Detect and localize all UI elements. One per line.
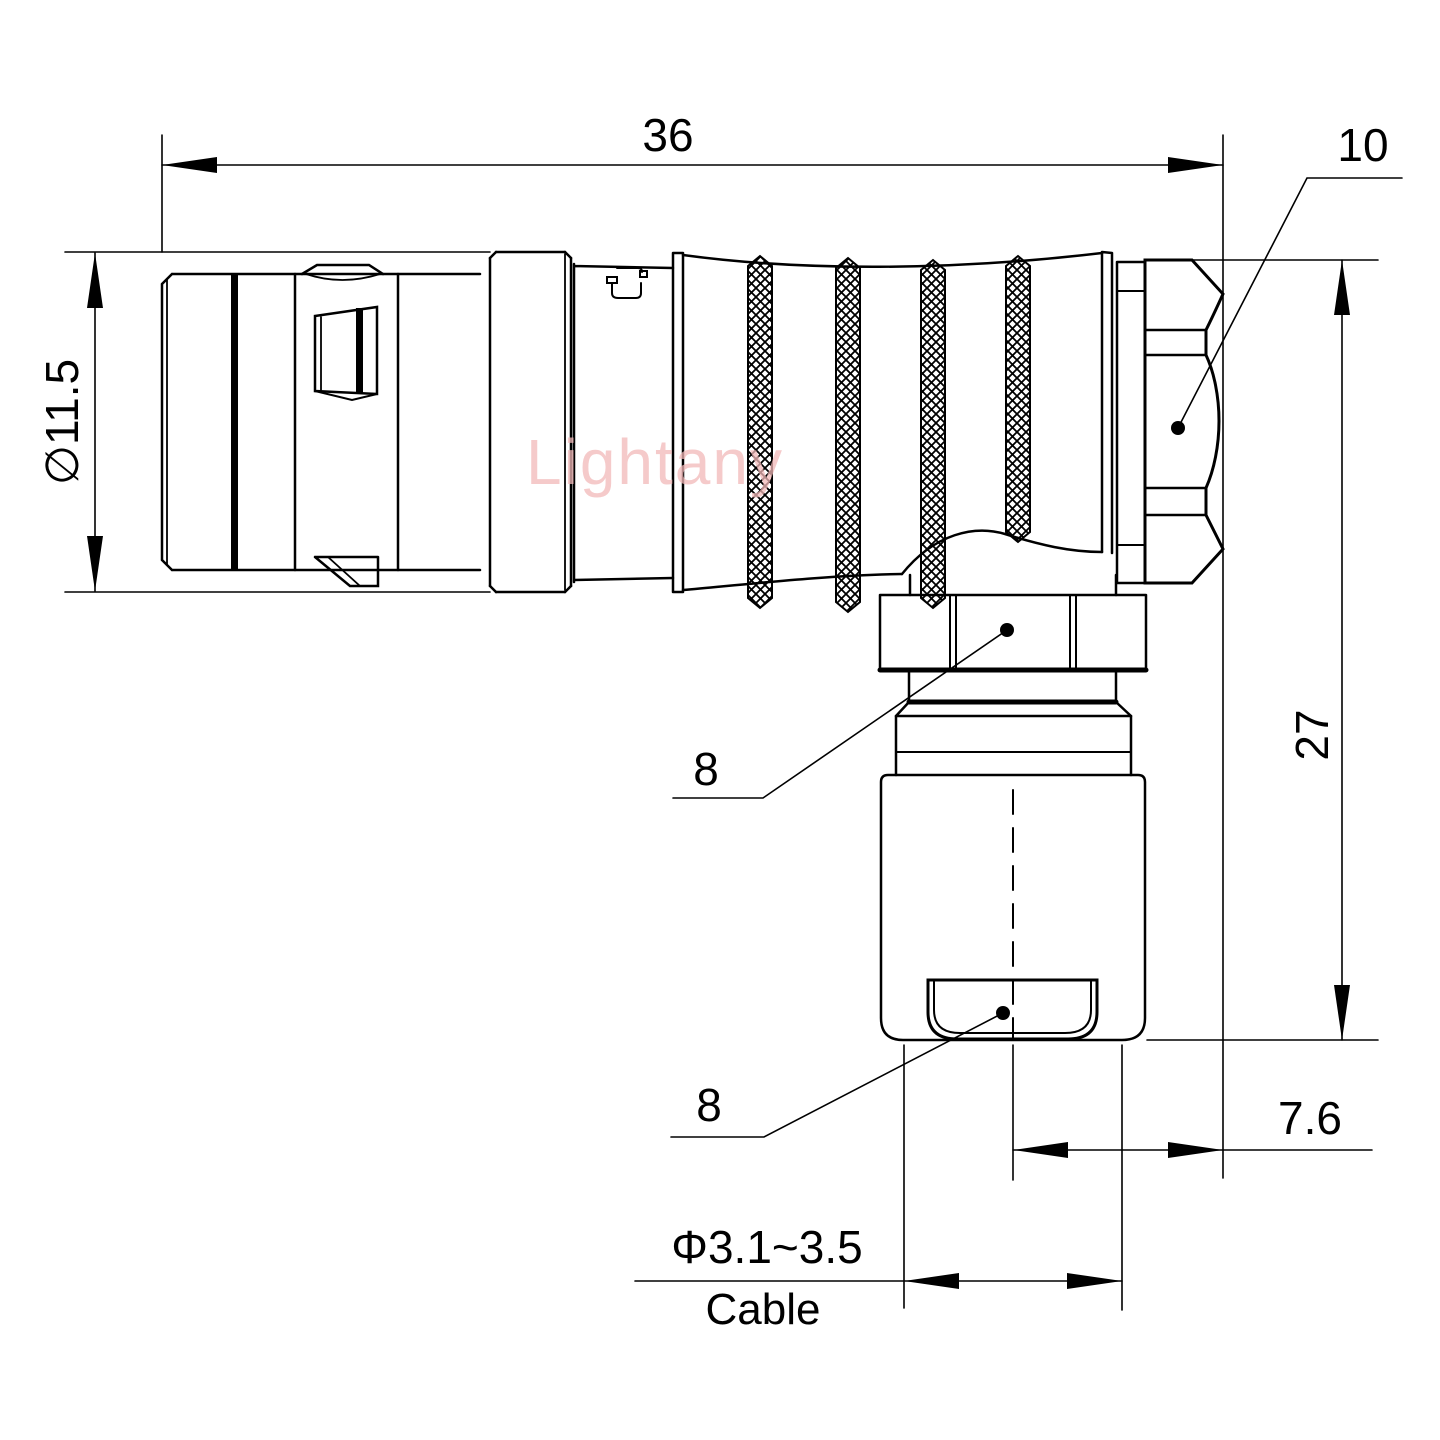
dimension-lines: [65, 135, 1402, 1310]
shell-collar: [490, 252, 571, 592]
front-shell: [162, 265, 480, 586]
elbow-face-plate: [1117, 262, 1145, 583]
dim-nut-flats-label: 10: [1313, 122, 1413, 168]
dim-clamp-label: 8: [684, 1082, 734, 1128]
cable-label: Cable: [663, 1288, 863, 1332]
mid-section: [574, 264, 673, 582]
bayonet-tab-top: [302, 265, 383, 274]
dim-total-length: [162, 135, 1223, 1178]
bayonet-window: [315, 307, 377, 400]
leader-nut-flats: [1171, 178, 1402, 435]
dim-cable-range-label: Φ3.1~3.5: [637, 1224, 897, 1270]
coupling-nut: [1145, 260, 1223, 583]
dim-shell-diameter-label: ∅11.5: [39, 322, 85, 522]
bayonet-tab-bottom: [315, 557, 378, 586]
watermark: Lightany: [445, 425, 865, 499]
dim-shell-diameter: [65, 252, 490, 592]
dim-backnut-label: 8: [681, 746, 731, 792]
dim-total-length-label: 36: [618, 112, 718, 158]
dim-total-height: [1147, 260, 1378, 1040]
latch-detail: [607, 268, 647, 298]
back-nut: [880, 575, 1146, 670]
dim-axis-offset-label: 7.6: [1260, 1095, 1360, 1141]
shell-key-bar: [231, 274, 238, 570]
gland-body: [896, 670, 1131, 775]
drawing-canvas: 36 10 ∅11.5 27 8 8 7.6 Φ3.1~3.5 Cable Li…: [0, 0, 1440, 1440]
dim-total-height-label: 27: [1289, 675, 1335, 795]
